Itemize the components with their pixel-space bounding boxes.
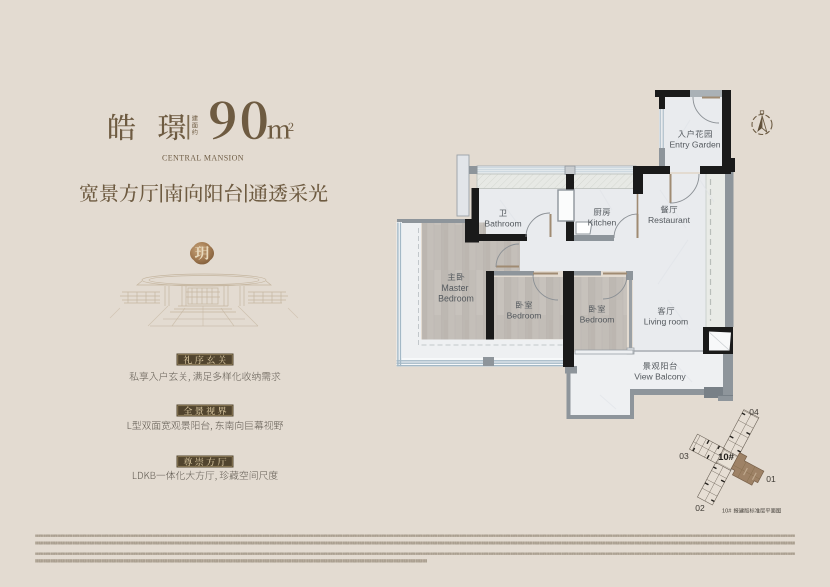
svg-text:Restaurant: Restaurant — [648, 215, 691, 225]
svg-text:10#: 10# — [722, 509, 732, 515]
svg-text:View Balcony: View Balcony — [634, 372, 686, 382]
svg-text:02: 02 — [695, 503, 705, 513]
svg-text:03: 03 — [679, 451, 689, 461]
svg-text:CENTRAL MANSION: CENTRAL MANSION — [162, 154, 244, 163]
svg-text:01: 01 — [766, 474, 776, 484]
svg-text:Bathroom: Bathroom — [484, 219, 521, 229]
svg-text:10#: 10# — [718, 452, 735, 463]
svg-text:Bedroom: Bedroom — [438, 294, 474, 304]
svg-text:Master: Master — [442, 283, 469, 293]
svg-text:Living room: Living room — [644, 317, 688, 327]
svg-text:Bedroom: Bedroom — [507, 311, 542, 321]
svg-text:04: 04 — [749, 407, 759, 417]
svg-text:Entry Garden: Entry Garden — [669, 140, 720, 150]
svg-text:Kitchen: Kitchen — [588, 218, 617, 228]
svg-text:Bedroom: Bedroom — [580, 315, 615, 325]
